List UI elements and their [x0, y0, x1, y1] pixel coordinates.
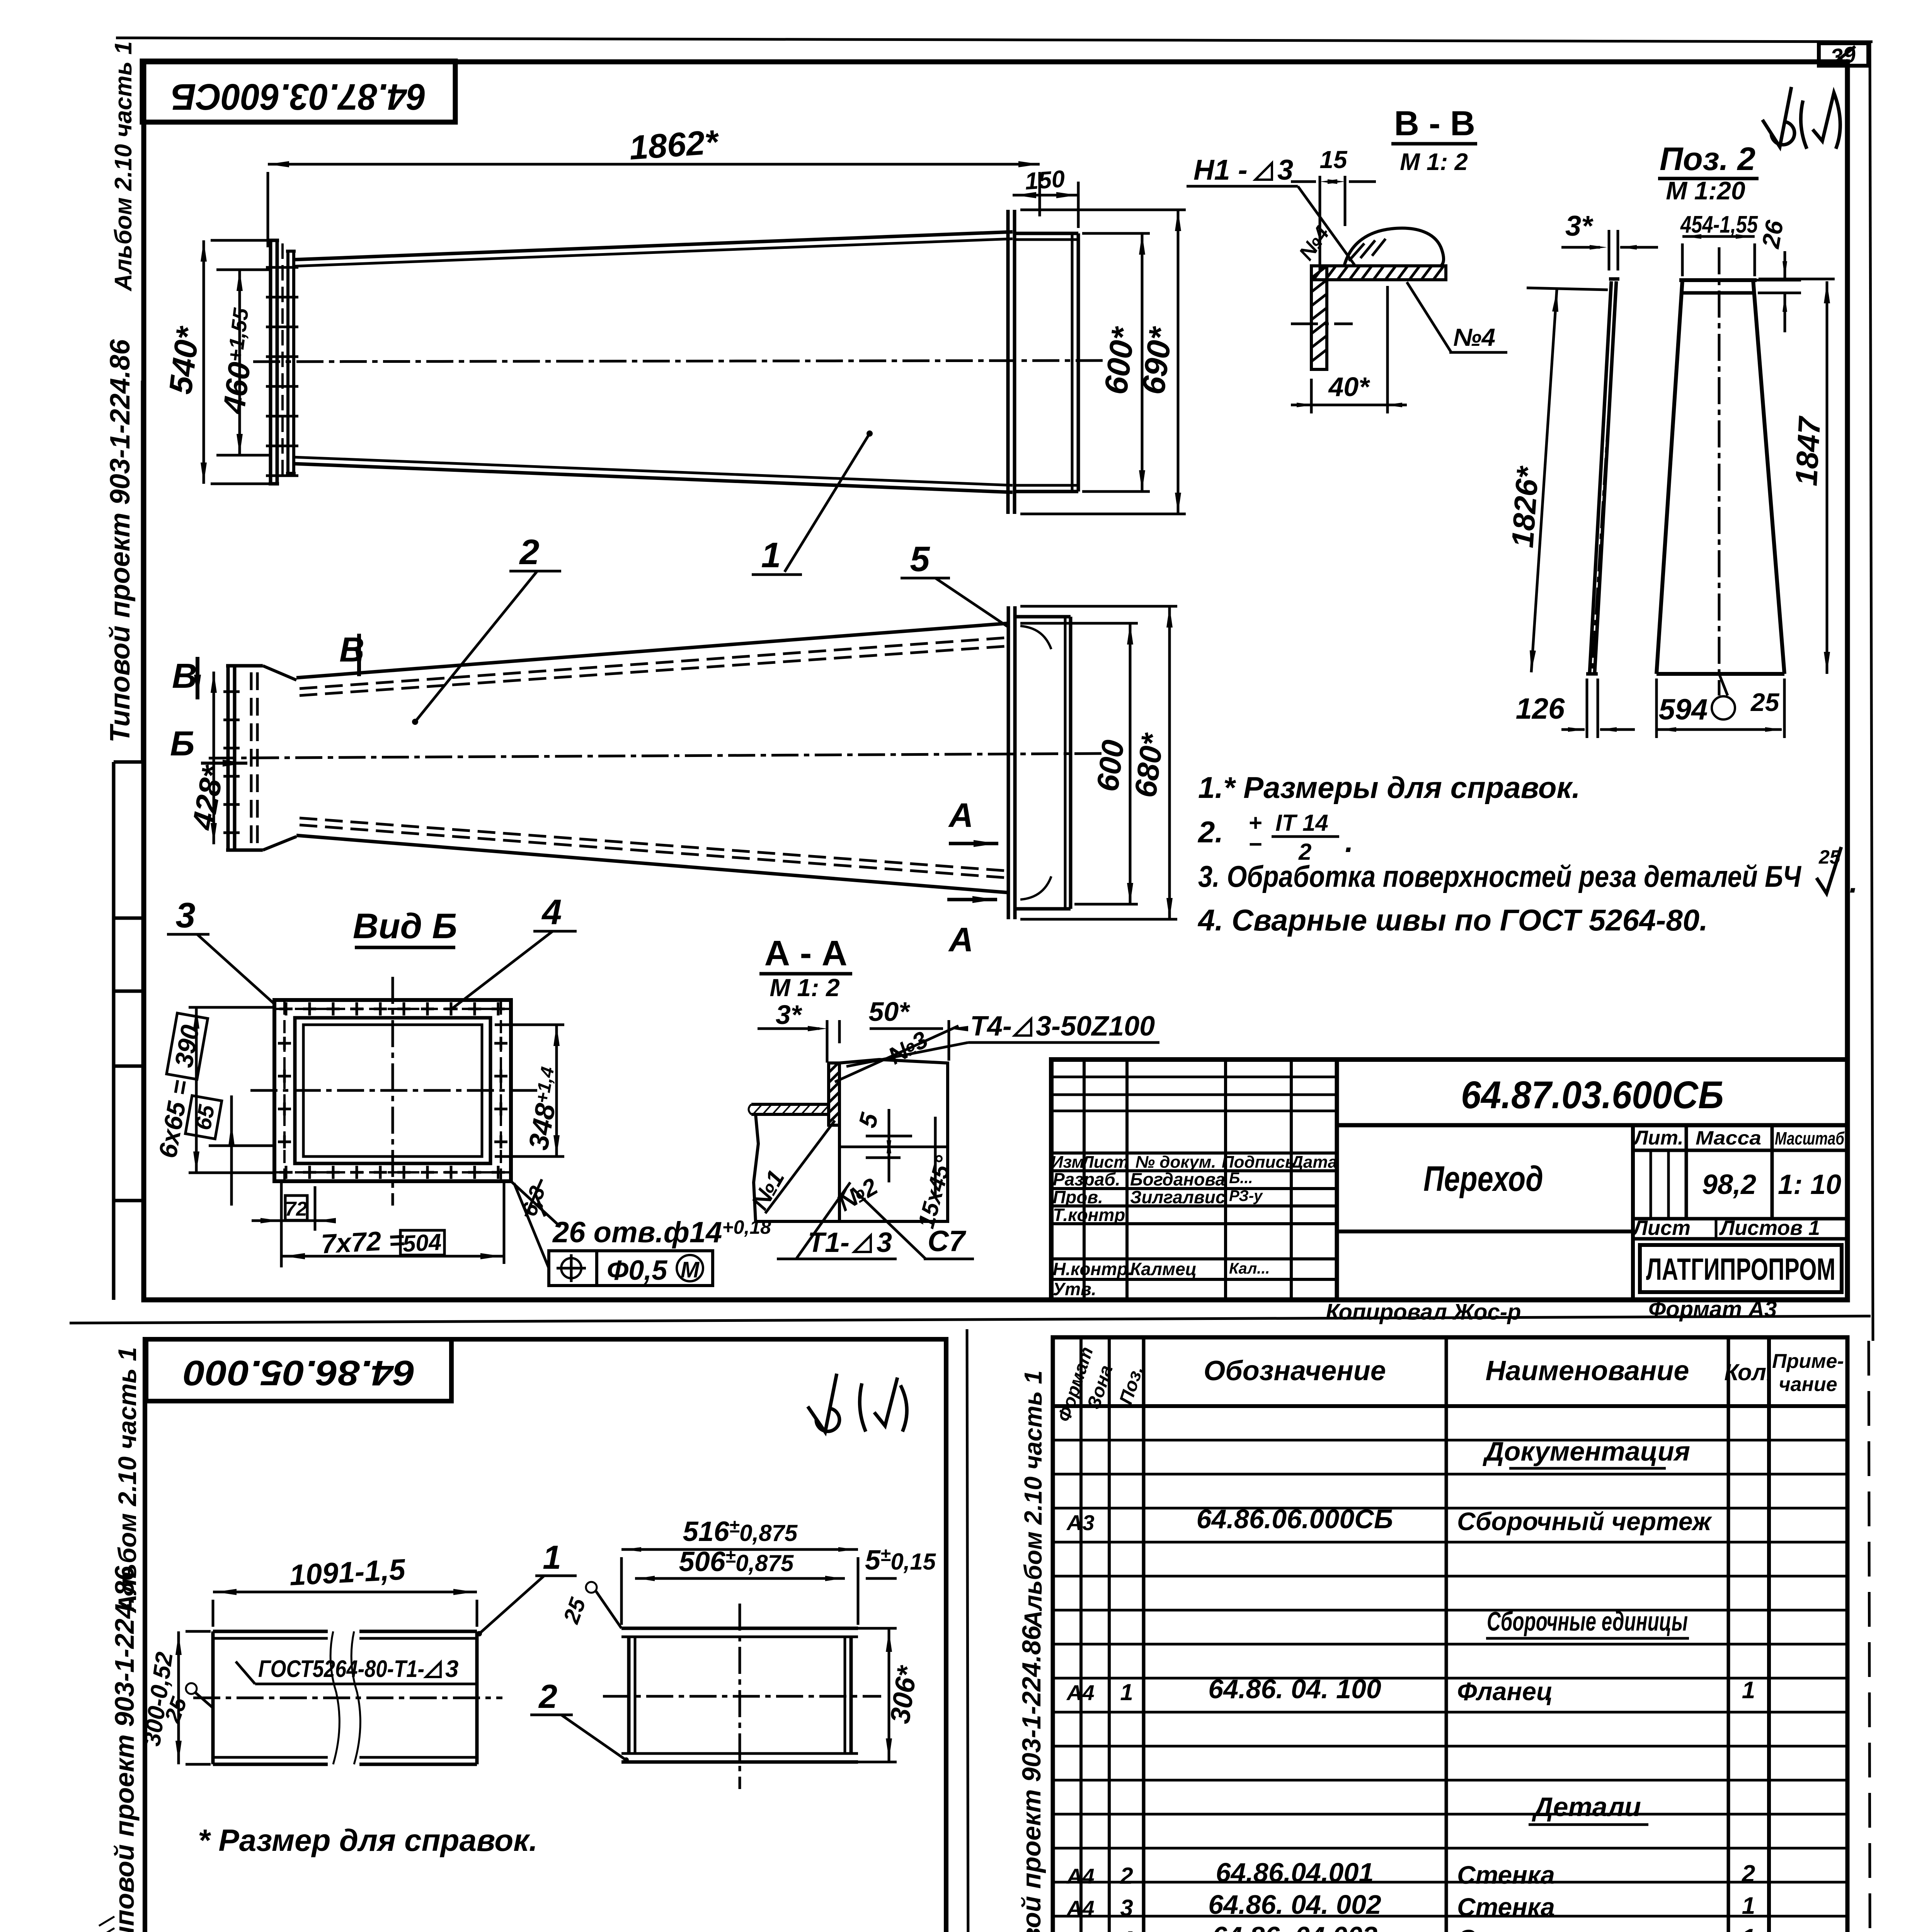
svg-text:2: 2 [519, 532, 539, 572]
svg-text:Поз. 2: Поз. 2 [1660, 141, 1755, 177]
svg-text:.: . [1849, 865, 1858, 899]
svg-text:Богданова: Богданова [1130, 1169, 1225, 1189]
svg-text:3: 3 [175, 896, 195, 935]
svg-text:506±0,875: 506±0,875 [679, 1546, 794, 1577]
svg-text:Ф0,5: Ф0,5 [607, 1255, 667, 1286]
svg-text:64.86. 04. 100: 64.86. 04. 100 [1208, 1674, 1381, 1704]
svg-text:Альбом 2.10 часть 1: Альбом 2.10 часть 1 [1019, 1371, 1047, 1629]
svg-text:1: 1 [543, 1539, 561, 1576]
svg-text:Лит.: Лит. [1633, 1127, 1684, 1149]
svg-text:Альбом 2.10 часть 1: Альбом 2.10 часть 1 [110, 41, 137, 292]
svg-text:М 1: 2: М 1: 2 [770, 974, 839, 1002]
svg-text:2.: 2. [1197, 815, 1223, 849]
svg-text:Утв.: Утв. [1053, 1279, 1096, 1299]
svg-text:А4: А4 [1066, 1680, 1095, 1705]
svg-text:Лист: Лист [1632, 1216, 1691, 1240]
svg-text:Дата: Дата [1289, 1153, 1337, 1172]
svg-text:25: 25 [1818, 846, 1841, 868]
svg-text:2: 2 [1742, 1861, 1755, 1887]
svg-text:Типовой проект 903-1-224.86: Типовой проект 903-1-224.86 [109, 1566, 140, 1932]
svg-text:64.86. 04.003: 64.86. 04.003 [1212, 1921, 1377, 1932]
svg-text:26: 26 [1757, 218, 1789, 250]
svg-text:7х72 =: 7х72 = [320, 1225, 405, 1259]
svg-text:4: 4 [541, 893, 562, 932]
svg-text:Детали: Детали [1532, 1792, 1641, 1822]
svg-text:594: 594 [1659, 693, 1708, 726]
svg-text:Масштаб: Масштаб [1775, 1128, 1845, 1148]
svg-text:Пров.: Пров. [1053, 1187, 1103, 1207]
svg-text:Стенка: Стенка [1457, 1924, 1555, 1932]
svg-text:15: 15 [1319, 146, 1348, 173]
svg-text:64.87.03.600СБ: 64.87.03.600СБ [1461, 1073, 1724, 1117]
svg-text:5±0,15: 5±0,15 [865, 1545, 936, 1576]
svg-text:.: . [1345, 825, 1353, 859]
svg-text:А4: А4 [1066, 1864, 1095, 1888]
svg-text:А - А: А - А [764, 934, 848, 973]
svg-text:Документация: Документация [1483, 1436, 1690, 1466]
svg-text:Калмец: Калмец [1130, 1259, 1197, 1279]
svg-text:50*: 50* [868, 997, 910, 1027]
svg-text:1: 1 [1120, 1679, 1133, 1705]
svg-text:64.86.04.001: 64.86.04.001 [1216, 1857, 1374, 1888]
svg-text:40*: 40* [1328, 372, 1370, 402]
svg-text:3: 3 [1120, 1895, 1133, 1921]
svg-text:А: А [948, 796, 974, 834]
svg-text:516±0,875: 516±0,875 [683, 1516, 798, 1547]
svg-text:1826*: 1826* [1505, 464, 1545, 549]
svg-text:Разраб.: Разраб. [1053, 1169, 1120, 1189]
svg-text:1847: 1847 [1789, 415, 1827, 487]
svg-text:Стенка: Стенка [1457, 1861, 1555, 1889]
svg-text:1: 1 [1742, 1677, 1755, 1704]
svg-text:Масса: Масса [1696, 1127, 1761, 1149]
svg-text:1091-1,5: 1091-1,5 [289, 1553, 407, 1592]
svg-text:С7: С7 [928, 1225, 967, 1258]
svg-text:1: 10: 1: 10 [1778, 1169, 1841, 1200]
svg-text:Кол.: Кол. [1724, 1359, 1772, 1385]
svg-text:ЛАТГИПРОПРОМ: ЛАТГИПРОПРОМ [1646, 1252, 1835, 1286]
svg-text:150: 150 [1024, 166, 1066, 195]
svg-text:А4: А4 [1066, 1896, 1095, 1920]
svg-text:Н.контр.: Н.контр. [1053, 1259, 1133, 1279]
svg-text:2: 2 [1120, 1863, 1133, 1889]
svg-text:Т4-: Т4- [970, 1011, 1012, 1042]
svg-text:64.87.03.600СБ: 64.87.03.600СБ [171, 76, 426, 117]
svg-text:504: 504 [402, 1229, 442, 1257]
svg-text:Приме-: Приме- [1772, 1350, 1844, 1372]
svg-text:1862*: 1862* [628, 122, 721, 167]
svg-text:5: 5 [910, 539, 930, 579]
svg-text:IT 14: IT 14 [1275, 810, 1328, 836]
svg-text:3-50Z100: 3-50Z100 [1036, 1011, 1155, 1042]
svg-text:М 1:20: М 1:20 [1666, 176, 1745, 205]
svg-text:Вид Б: Вид Б [353, 906, 457, 946]
svg-text:А: А [948, 920, 974, 959]
svg-text:А3: А3 [1066, 1510, 1095, 1535]
svg-text:1.* Размеры для справок.: 1.* Размеры для справок. [1198, 770, 1580, 804]
svg-text:1: 1 [1742, 1924, 1755, 1932]
svg-text:чание: чание [1779, 1373, 1837, 1396]
svg-text:Сборочные единицы: Сборочные единицы [1487, 1606, 1688, 1636]
svg-text:72: 72 [285, 1198, 307, 1220]
svg-text:64.86.05.000: 64.86.05.000 [184, 1353, 415, 1393]
svg-text:Зилгалвис: Зилгалвис [1130, 1187, 1225, 1207]
svg-text:1: 1 [761, 536, 781, 575]
svg-text:РЗ-у: РЗ-у [1229, 1187, 1263, 1204]
svg-text:Листов 1: Листов 1 [1719, 1216, 1820, 1240]
svg-text:Н1 -: Н1 - [1193, 154, 1248, 186]
svg-text:454-1,55: 454-1,55 [1680, 211, 1758, 238]
svg-text:2: 2 [538, 1678, 557, 1715]
svg-text:600: 600 [1090, 738, 1130, 793]
svg-text:Типовой проект 903-1-224.86: Типовой проект 903-1-224.86 [1017, 1625, 1046, 1932]
svg-text:Копировал Жос-р: Копировал Жос-р [1326, 1299, 1521, 1325]
svg-text:Кал...: Кал... [1229, 1260, 1270, 1277]
svg-text:98,2: 98,2 [1702, 1169, 1756, 1200]
svg-text:126: 126 [1516, 692, 1565, 725]
svg-text:Б...: Б... [1229, 1170, 1253, 1187]
svg-text:1: 1 [1742, 1893, 1755, 1919]
svg-text:В: В [172, 657, 197, 696]
svg-text:Лист: Лист [1081, 1153, 1129, 1172]
svg-text:№4: №4 [1453, 323, 1495, 351]
svg-text:4. Сварные швы по ГОСТ 5264-8: 4. Сварные швы по ГОСТ 5264-80. [1197, 903, 1708, 937]
svg-text:В - В: В - В [1394, 104, 1475, 143]
svg-text:25: 25 [1750, 688, 1780, 716]
svg-text:Подпись: Подпись [1222, 1153, 1295, 1172]
svg-text:Типовой проект 903-1-224.86: Типовой проект 903-1-224.86 [105, 339, 136, 743]
svg-text:* Размер для справок.: * Размер для справок. [198, 1823, 538, 1857]
svg-text:−: − [1248, 831, 1262, 857]
svg-text:3: 3 [877, 1227, 892, 1258]
svg-text:М: М [681, 1257, 700, 1282]
svg-text:3*: 3* [1565, 210, 1594, 242]
svg-text:Наименование: Наименование [1486, 1355, 1689, 1386]
svg-text:65: 65 [191, 1103, 220, 1132]
svg-text:Т.контр.: Т.контр. [1053, 1205, 1130, 1225]
svg-text:3: 3 [445, 1656, 458, 1682]
svg-text:Переход: Переход [1423, 1159, 1543, 1199]
svg-text:64.86. 04. 002: 64.86. 04. 002 [1208, 1889, 1381, 1920]
svg-text:Фланец: Фланец [1457, 1677, 1553, 1706]
svg-text:64.86.06.000СБ: 64.86.06.000СБ [1197, 1504, 1393, 1534]
svg-text:4: 4 [1120, 1927, 1133, 1932]
svg-text:А4: А4 [1066, 1928, 1095, 1932]
svg-text:Б: Б [170, 724, 195, 763]
svg-text:3: 3 [1277, 154, 1293, 186]
svg-text:Сборочный чертеж: Сборочный чертеж [1457, 1507, 1713, 1536]
svg-text:Стенка: Стенка [1457, 1893, 1555, 1921]
svg-text:3*: 3* [776, 1000, 802, 1030]
svg-text:3. Обработка поверхностей рез: 3. Обработка поверхностей реза деталей Б… [1198, 859, 1802, 893]
svg-text:ГОСТ5264-80-Т1-: ГОСТ5264-80-Т1- [258, 1656, 424, 1682]
svg-text:Изм: Изм [1051, 1153, 1084, 1172]
svg-text:№ докум.: № докум. [1136, 1153, 1216, 1172]
svg-text:М 1: 2: М 1: 2 [1400, 149, 1468, 175]
svg-text:Формат А3: Формат А3 [1648, 1297, 1777, 1322]
svg-text:Обозначение: Обозначение [1204, 1355, 1386, 1386]
